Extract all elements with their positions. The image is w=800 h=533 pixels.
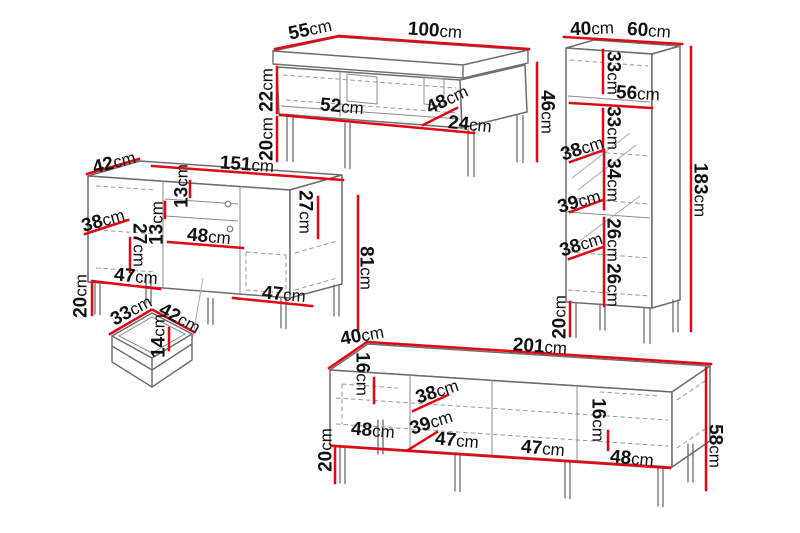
diagram-canvas: 55cm 100cm 22cm 20cm 52cm 48cm 24cm 46cm… xyxy=(0,0,800,533)
tall-cabinet-leg-height-label: 20cm xyxy=(549,295,570,339)
tv-stand-total-height-label: 58cm xyxy=(705,424,726,468)
drawer-height-label: 14cm xyxy=(148,314,169,358)
sideboard-inner-height-right-label: 27cm xyxy=(295,190,316,234)
tall-cabinet-drawing: 40cm 60cm 33cm 56cm 33cm 38cm 34cm 39cm … xyxy=(549,17,710,343)
sideboard-width-label: 151cm xyxy=(219,152,275,177)
tv-stand-compartment1-label: 48cm xyxy=(350,418,395,443)
tv-stand-compartment2-label: 47cm xyxy=(434,428,479,453)
tall-cabinet-section2-label: 33cm xyxy=(603,106,624,150)
tv-stand-drawing: 40cm 201cm 16cm 38cm 48cm 39cm 47cm 47cm… xyxy=(315,322,725,507)
coffee-table-body-height-label: 22cm xyxy=(256,68,277,112)
drawer-drawing: 33cm 42cm 14cm xyxy=(107,291,204,387)
coffee-table-drawing: 55cm 100cm 22cm 20cm 52cm 48cm 24cm 46cm xyxy=(256,15,557,177)
tall-cabinet-depth-label: 40cm xyxy=(570,17,615,40)
tall-cabinet-section3-label: 34cm xyxy=(603,158,624,202)
furniture-dimensions-diagram: 55cm 100cm 22cm 20cm 52cm 48cm 24cm 46cm… xyxy=(0,0,800,533)
tv-stand-top-gap-left-label: 16cm xyxy=(352,352,373,396)
coffee-table-leg-height-label: 20cm xyxy=(256,117,277,161)
sideboard-knob-top xyxy=(225,201,231,207)
tv-stand-compartment4-label: 48cm xyxy=(609,446,654,471)
sideboard-total-height-label: 81cm xyxy=(356,246,377,290)
sideboard-drawer-width-label: 48cm xyxy=(186,224,231,249)
sideboard-shelf-gap2-label: 13cm xyxy=(146,201,167,245)
tall-cabinet-total-height-label: 183cm xyxy=(690,163,711,217)
tall-cabinet-section4-label: 26cm xyxy=(603,218,624,262)
sideboard-shelf-gap1-label: 13cm xyxy=(171,164,192,208)
tall-cabinet-shelf-width-label: 56cm xyxy=(616,82,661,105)
sideboard-compartment-right-label: 47cm xyxy=(261,282,306,307)
tv-stand-compartment3-label: 47cm xyxy=(520,436,565,461)
tall-cabinet-section5-label: 26cm xyxy=(603,263,624,307)
tall-cabinet-width-label: 60cm xyxy=(626,19,671,43)
tv-stand-width-label: 201cm xyxy=(512,334,568,359)
sideboard-compartment-left-label: 47cm xyxy=(113,264,158,289)
coffee-table-shelf-length-label: 52cm xyxy=(319,94,364,119)
tv-stand-leg-height-label: 20cm xyxy=(315,428,336,472)
coffee-table-width-label: 100cm xyxy=(407,18,463,43)
coffee-table-total-height-label: 46cm xyxy=(537,90,558,134)
sideboard-leg-height-label: 20cm xyxy=(70,274,91,318)
tv-stand-top-gap-right-label: 16cm xyxy=(588,398,609,442)
